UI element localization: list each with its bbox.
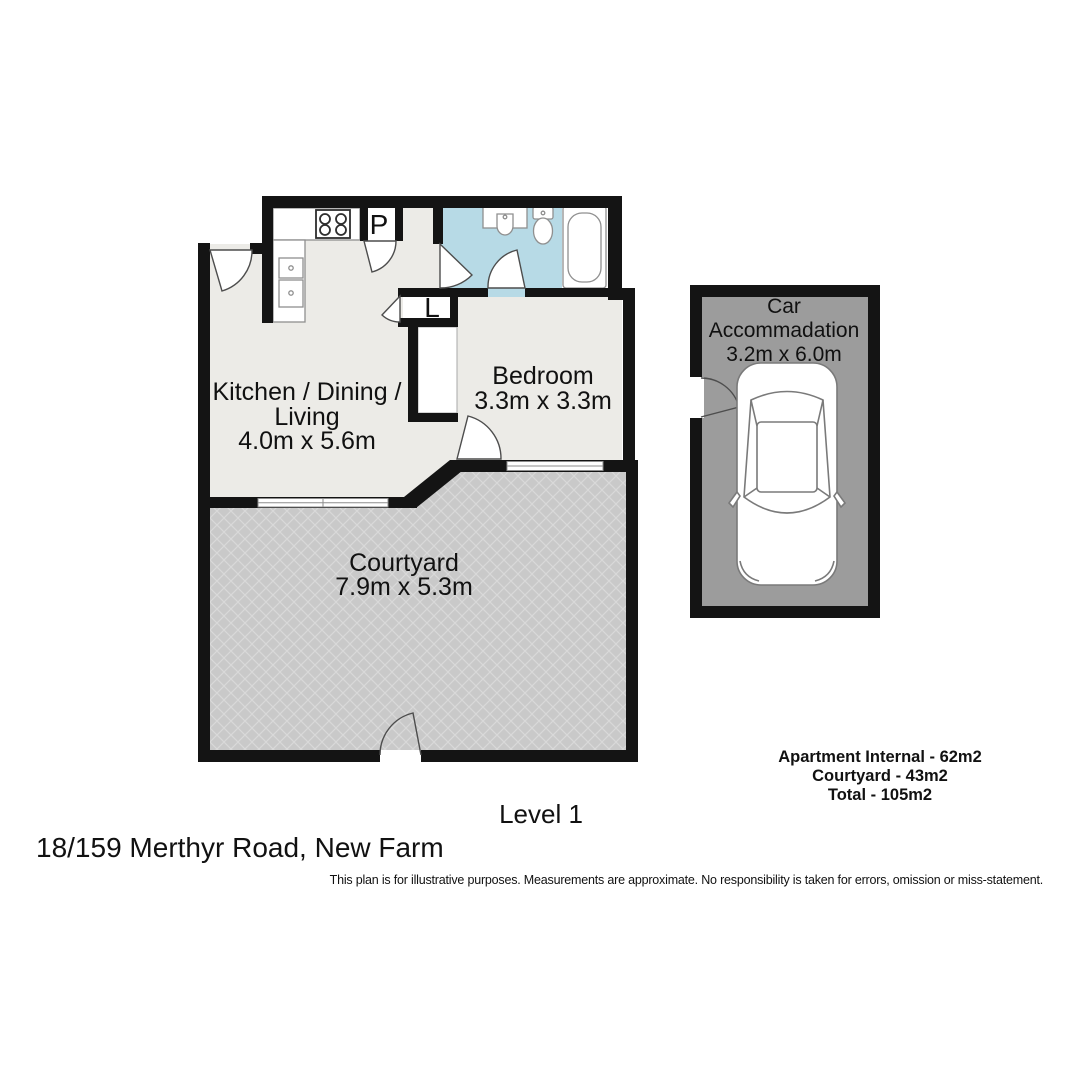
wall-pantry-right [395, 208, 403, 241]
bedroom-dims: 3.3m x 3.3m [474, 387, 612, 415]
linen-label: L [424, 292, 440, 323]
floor-plan-canvas: Kitchen / Dining / Living 4.0m x 5.6m Be… [0, 0, 1080, 1080]
courtyard-dims: 7.9m x 5.3m [335, 573, 473, 601]
pantry-label: P [370, 209, 389, 240]
bathroom-bedroom-opening [488, 288, 525, 297]
wall-courtyard-left [198, 508, 210, 762]
courtyard-door-opening [380, 750, 421, 762]
stove-icon [316, 210, 350, 238]
wall-bathroom-right [608, 196, 622, 297]
wall-top [262, 196, 622, 208]
area-total: Total - 105m2 [828, 786, 932, 804]
address: 18/159 Merthyr Road, New Farm [36, 832, 444, 863]
garage-dims: 3.2m x 6.0m [726, 343, 842, 366]
toilet-icon [533, 207, 553, 244]
living-label-line1: Kitchen / Dining / [213, 378, 402, 406]
garage-wall-right [868, 285, 880, 618]
wall-robe-left [408, 327, 418, 422]
garage-label-line2: Accommadation [709, 319, 860, 342]
garage-label-line1: Car [767, 295, 801, 318]
kitchen-cabinet-icon [279, 258, 303, 307]
living-window [258, 499, 388, 508]
courtyard-area [210, 472, 626, 750]
garage-door-opening [688, 377, 704, 418]
living-dims: 4.0m x 5.6m [238, 427, 376, 455]
wall-bathroom-left [433, 208, 443, 244]
bedroom-label: Bedroom [492, 362, 593, 390]
courtyard-floor [210, 472, 626, 750]
level-label: Level 1 [499, 799, 583, 829]
bathtub-icon [563, 206, 606, 288]
garage-wall-bottom [690, 606, 880, 618]
area-apartment-internal: Apartment Internal - 62m2 [778, 748, 982, 766]
wall-pantry-left [360, 208, 368, 241]
floor-plan-page: Kitchen / Dining / Living 4.0m x 5.6m Be… [0, 0, 1080, 1080]
wall-courtyard-right [626, 460, 638, 762]
wall-kitchen-left [262, 196, 273, 323]
bedroom-window [507, 462, 603, 471]
robe-icon [418, 327, 457, 413]
disclaimer: This plan is for illustrative purposes. … [330, 873, 1043, 887]
annotations: Apartment Internal - 62m2 Courtyard - 43… [36, 748, 1043, 887]
garage-wall-left [690, 285, 702, 618]
car-icon [729, 363, 845, 585]
wall-living-left [198, 243, 210, 508]
wall-robe-bottom [408, 413, 458, 422]
wall-bedroom-right [623, 288, 635, 472]
area-courtyard: Courtyard - 43m2 [812, 767, 948, 785]
